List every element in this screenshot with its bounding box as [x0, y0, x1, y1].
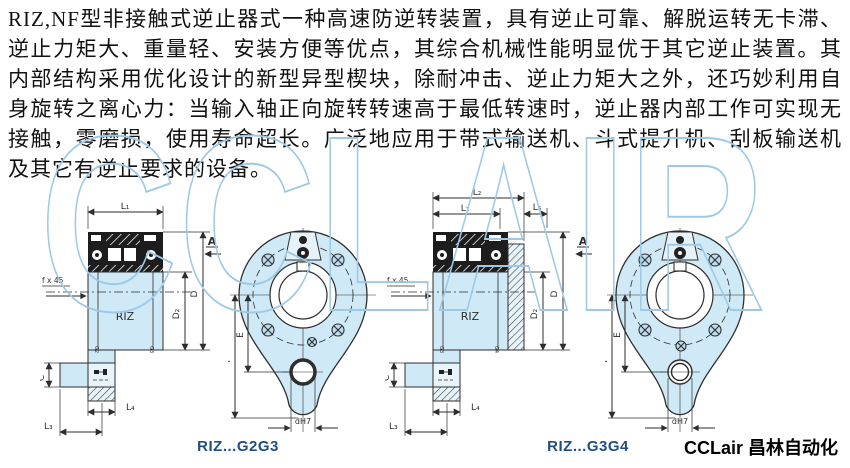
plug-label-left: G2: [93, 346, 99, 353]
dim-label-l1: L₁: [121, 202, 130, 212]
dim-label-fx45: f x 45: [42, 276, 64, 285]
dim-label-c: C: [40, 375, 47, 381]
body-label-riz: RIZ: [461, 310, 480, 323]
dim-label-dh7: dH7: [672, 417, 688, 426]
figure-caption-g3g4: RIZ...G3G4: [513, 438, 663, 455]
dim-label-d2: D₂: [172, 308, 182, 319]
dim-label-l3: L₃: [44, 422, 53, 432]
dim-label-l4: L₄: [471, 403, 480, 413]
brand-text: CCLair 昌林自动化: [684, 434, 838, 460]
dim-label-d: D: [550, 290, 560, 297]
dim-label-e: E: [613, 332, 623, 338]
body-label-riz: RIZ: [116, 310, 135, 323]
dim-label-l2: L₂: [473, 188, 482, 198]
plug-label-right: G3: [148, 346, 154, 353]
section-view-g3g4: L₂ L₁ L₅ f x 45 D₂ D A RIZ C L₄ L₃ G3 G4: [385, 188, 600, 441]
intro-paragraph: RIZ,NF型非接触式逆止器式一种高速防逆转装置，具有逆止可靠、解脱运转无卡滞、…: [8, 4, 842, 184]
front-view-g3g4: E F dH7: [605, 200, 755, 440]
section-view-g2g3: L₁ f x 45 D₂ D A RIZ C L₄ L₃ G2 G3: [40, 196, 230, 441]
dim-label-f: F: [605, 357, 610, 362]
front-view-g2g3: E F dH7: [228, 200, 378, 440]
plug-label-left: G3: [438, 346, 444, 353]
dim-label-l5: L₅: [533, 203, 542, 213]
figure-caption-g2g3: RIZ...G2G3: [163, 438, 313, 455]
dim-label-c: C: [385, 375, 392, 381]
dim-label-dh7: dH7: [295, 417, 311, 426]
dim-label-l1: L₁: [461, 204, 470, 214]
dim-label-f: F: [228, 357, 233, 362]
dim-label-l4: L₄: [126, 403, 135, 413]
view-label-a: A: [579, 235, 588, 248]
dim-label-d: D: [190, 290, 200, 297]
view-label-a: A: [208, 235, 217, 248]
dim-label-l3: L₃: [389, 422, 398, 432]
dim-label-e: E: [236, 332, 246, 338]
catalog-page: RIZ,NF型非接触式逆止器式一种高速防逆转装置，具有逆止可靠、解脱运转无卡滞、…: [0, 0, 850, 468]
plug-label-right: G4: [493, 346, 499, 353]
dim-label-fx45: f x 45: [387, 276, 409, 285]
dim-label-d2: D₂: [530, 308, 540, 319]
